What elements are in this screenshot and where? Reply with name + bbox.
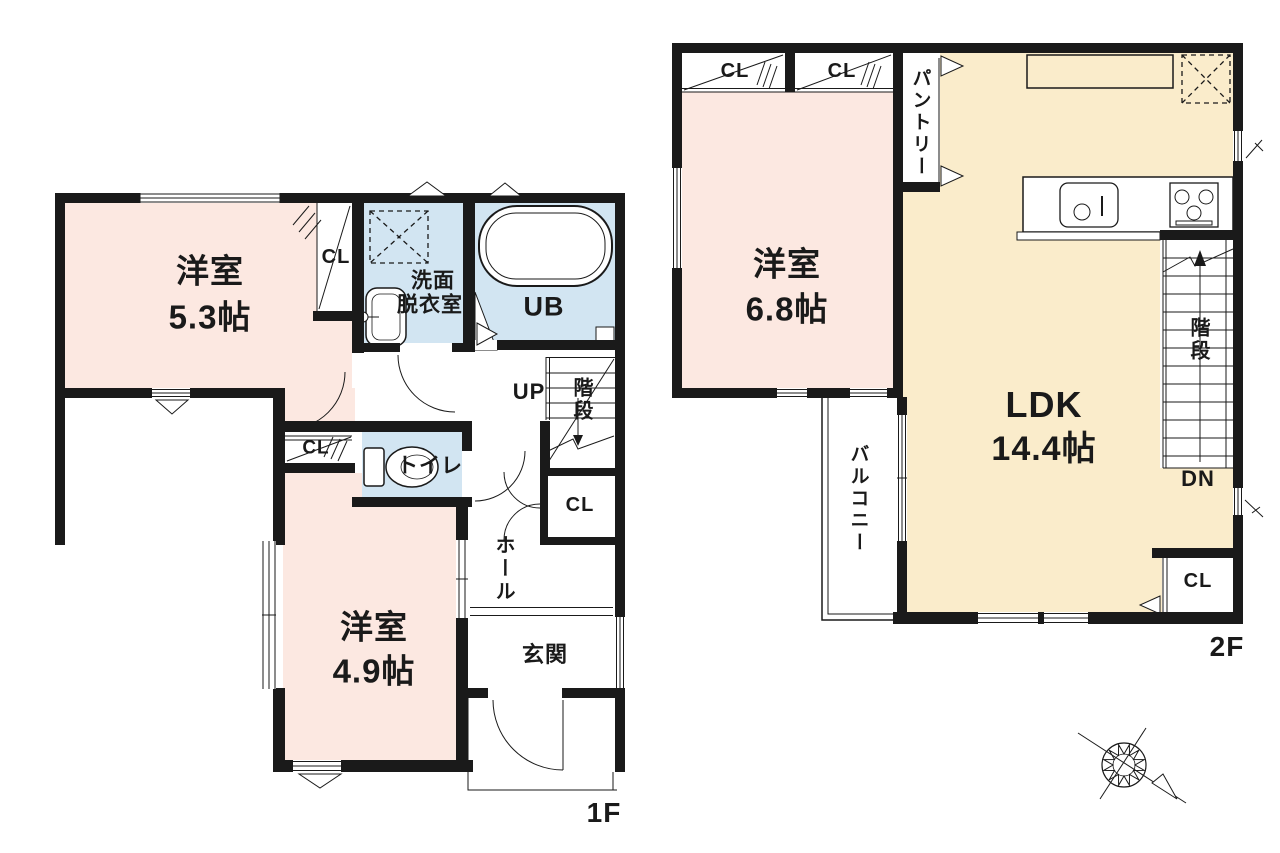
compass-icon (1078, 728, 1186, 803)
vent-triangle-bath (489, 183, 521, 196)
hall-label: ホール (493, 535, 513, 604)
vent-triangle-washroom (408, 182, 446, 196)
porch-outline (468, 698, 617, 790)
closet-49-label: CL (302, 439, 329, 458)
stairs-2f-label: 階段 (1188, 317, 1208, 363)
window-room49-bottom (293, 760, 341, 788)
window-room53-bottom (152, 388, 190, 414)
window-tick-lower (1245, 500, 1263, 517)
window-f2-bottom-2 (1044, 612, 1088, 624)
washroom-label-1: 洗面 (411, 271, 455, 292)
floor1-label: 1F (587, 799, 622, 827)
slide-door-room49 (456, 540, 468, 618)
room-68-size: 6.8帖 (746, 293, 829, 326)
window-f2-right-stairs (1233, 488, 1263, 517)
stairs-down-arrowhead (573, 435, 583, 446)
toilet-label: トイレ (397, 456, 463, 477)
down-label: DN (1181, 468, 1215, 490)
kitchen-sink-icon (1060, 183, 1118, 227)
pantry-label: パントリー (911, 68, 930, 178)
floor2-label: 2F (1210, 633, 1245, 661)
closet-ldk-label: CL (1184, 571, 1213, 591)
f2-room-6-8-floor (682, 92, 893, 388)
door-arc-washroom (398, 355, 455, 412)
window-room49-left (262, 541, 276, 689)
window-room53-top (140, 193, 280, 203)
floor-plan-canvas: 洋室 5.3帖 CL 洗面 脱衣室 UB CL トイレ UP 階段 CL ホール… (0, 0, 1280, 853)
up-label: UP (513, 381, 546, 403)
room-49-name: 洋室 (340, 611, 408, 644)
window-balcony-door (897, 415, 907, 541)
entrance-label: 玄関 (522, 644, 568, 666)
bath-label: UB (524, 294, 565, 321)
window-entrance-right (615, 617, 625, 688)
closet-right-label: CL (828, 61, 857, 81)
closet-53-label: CL (322, 247, 351, 267)
compass-arrow-flag (1152, 774, 1177, 799)
stairs-1f-label: 階段 (571, 377, 591, 423)
ldk-name: LDK (1006, 387, 1083, 423)
window-room68-bottom-2 (850, 388, 887, 398)
room-53-name: 洋室 (176, 255, 244, 288)
balcony-label: バルコニー (849, 444, 868, 554)
window-tick-upper (1246, 140, 1263, 158)
f2-room-fills (682, 53, 1233, 612)
floor-plan-drawing (0, 0, 1280, 853)
washroom-label-2: 脱衣室 (397, 295, 463, 316)
closet-left-label: CL (721, 61, 750, 81)
closet-hall-label: CL (566, 495, 595, 515)
door-arc-toilet (475, 451, 525, 501)
f1-room-5-3-floor (62, 203, 352, 388)
room-49-size: 4.9帖 (333, 655, 416, 688)
ldk-size: 14.4帖 (991, 432, 1096, 466)
window-f2-right-kitchen (1233, 131, 1263, 161)
room-53-size: 5.3帖 (169, 301, 252, 334)
door-arc-hall-closet-top (504, 472, 540, 508)
window-f2-left (672, 168, 682, 268)
window-room68-bottom-1 (777, 388, 807, 398)
f1-passage-floor (283, 388, 355, 421)
door-arc-entrance (493, 700, 563, 770)
room-68-name: 洋室 (753, 248, 821, 281)
window-f2-bottom-1 (978, 612, 1038, 624)
